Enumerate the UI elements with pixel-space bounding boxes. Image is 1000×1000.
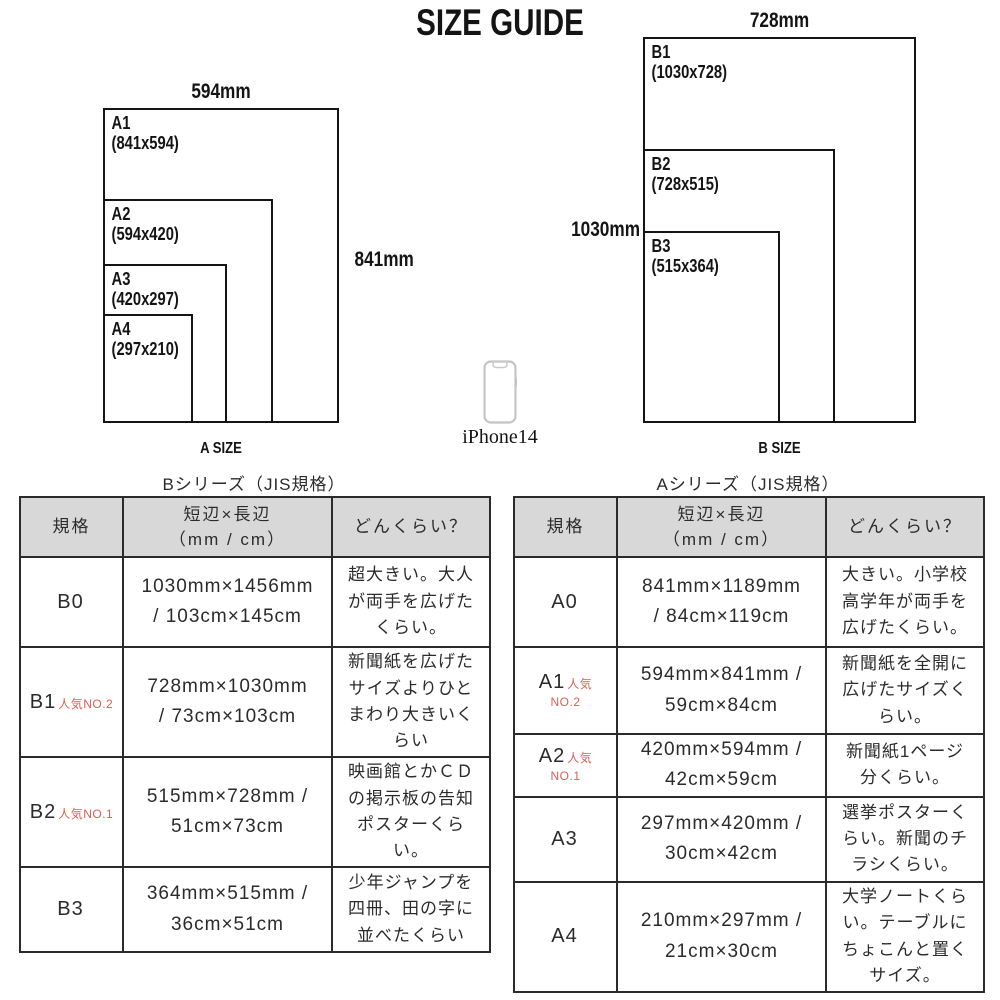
b1-label-cell: B1人気NO.2 [20, 647, 123, 757]
a0-desc-cell: 大きい。小学校 高学年が両手を 広げたくらい。 [826, 557, 984, 647]
a2-desc-cell: 新聞紙1ページ 分くらい。 [826, 734, 984, 797]
b2-label-cell: B2人気NO.1 [20, 757, 123, 867]
popularity-badge: 人気 [567, 677, 592, 691]
b3-desc-cell: 少年ジャンプを 四冊、田の字に 並べたくらい [332, 867, 490, 952]
b1-desc-cell: 新聞紙を広げた サイズよりひと まわり大きいく らい [332, 647, 490, 757]
b-header-howbig: どんくらい？ [332, 497, 490, 557]
a-table-header-row: 規格 短辺×長辺 （mm / cm） どんくらい？ [514, 497, 984, 557]
b1-rect-label: B1 (1030x728) [645, 39, 866, 82]
b-width-label: 728mm [668, 9, 892, 33]
table-row-a0: A0 841mm×1189mm / 84cm×119cm 大きい。小学校 高学年… [514, 557, 984, 647]
b3-size-cell: 364mm×515mm / 36cm×51cm [123, 867, 332, 952]
a4-desc-cell: 大学ノートくら い。テーブルに ちょこんと置く サイズ。 [826, 882, 984, 992]
b-size-caption: B SIZE [668, 440, 892, 458]
size-guide-infographic: SIZE GUIDE 594mm A1 (841x594) A2 (594x42… [0, 0, 1000, 1000]
table-row-b3: B3 364mm×515mm / 36cm×51cm 少年ジャンプを 四冊、田の… [20, 867, 490, 952]
a3-desc-cell: 選挙ポスターく らい。新聞のチ ラシくらい。 [826, 797, 984, 882]
table-row-b0: B0 1030mm×1456mm / 103cm×145cm 超大きい。大人 が… [20, 557, 490, 647]
a1-size-cell: 594mm×841mm / 59cm×84cm [617, 647, 826, 734]
b-table-title: Bシリーズ（JIS規格） [19, 470, 489, 495]
a1-rect-label: A1 (841x594) [105, 110, 295, 153]
a-width-label: 594mm [124, 80, 318, 104]
popularity-badge: 人気NO.1 [58, 807, 113, 821]
b-table-header-row: 規格 短辺×長辺 （mm / cm） どんくらい？ [20, 497, 490, 557]
table-row-a4: A4 210mm×297mm / 21cm×30cm 大学ノートくら い。テーブ… [514, 882, 984, 992]
table-row-a2: A2人気NO.1 420mm×594mm / 42cm×59cm 新聞紙1ページ… [514, 734, 984, 797]
a2-label-cell: A2人気NO.1 [514, 734, 617, 797]
b-height-label: 1030mm [565, 218, 640, 242]
phone-reference: iPhone14 [450, 360, 550, 449]
b0-label-cell: B0 [20, 557, 123, 647]
a-table-title: Aシリーズ（JIS規格） [513, 470, 983, 495]
a-header-howbig: どんくらい？ [826, 497, 984, 557]
a-series-table: 規格 短辺×長辺 （mm / cm） どんくらい？ A0 841mm×1189m… [513, 496, 985, 993]
a4-rect: A4 (297x210) [103, 314, 193, 423]
a4-rect-label: A4 (297x210) [105, 316, 176, 359]
b1-size-cell: 728mm×1030mm / 73cm×103cm [123, 647, 332, 757]
popularity-badge-line2: NO.1 [515, 768, 616, 785]
b0-size-cell: 1030mm×1456mm / 103cm×145cm [123, 557, 332, 647]
iphone-icon [483, 360, 517, 424]
a-header-standard: 規格 [514, 497, 617, 557]
phone-label: iPhone14 [450, 426, 550, 449]
a2-rect-label: A2 (594x420) [105, 201, 241, 244]
b3-rect: B3 (515x364) [643, 231, 780, 423]
a-header-dimensions: 短辺×長辺 （mm / cm） [617, 497, 826, 557]
a0-size-cell: 841mm×1189mm / 84cm×119cm [617, 557, 826, 647]
table-row-a1: A1人気NO.2 594mm×841mm / 59cm×84cm 新聞紙を全開に… [514, 647, 984, 734]
b2-rect-label: B2 (728x515) [645, 151, 799, 194]
b3-rect-label: B3 (515x364) [645, 233, 754, 276]
a4-label-cell: A4 [514, 882, 617, 992]
popularity-badge: 人気 [567, 751, 592, 765]
a0-label-cell: A0 [514, 557, 617, 647]
b-header-standard: 規格 [20, 497, 123, 557]
a3-label-cell: A3 [514, 797, 617, 882]
table-row-a3: A3 297mm×420mm / 30cm×42cm 選挙ポスターく らい。新聞… [514, 797, 984, 882]
b0-desc-cell: 超大きい。大人 が両手を広げた くらい。 [332, 557, 490, 647]
table-row-b1: B1人気NO.2 728mm×1030mm / 73cm×103cm 新聞紙を広… [20, 647, 490, 757]
b-series-table: 規格 短辺×長辺 （mm / cm） どんくらい？ B0 1030mm×1456… [19, 496, 491, 953]
a1-desc-cell: 新聞紙を全開に 広げたサイズく らい。 [826, 647, 984, 734]
a3-rect-label: A3 (420x297) [105, 266, 203, 309]
a4-size-cell: 210mm×297mm / 21cm×30cm [617, 882, 826, 992]
b2-desc-cell: 映画館とかＣＤ の掲示板の告知 ポスターくら い。 [332, 757, 490, 867]
a-size-caption: A SIZE [124, 440, 318, 458]
b3-label-cell: B3 [20, 867, 123, 952]
b2-size-cell: 515mm×728mm / 51cm×73cm [123, 757, 332, 867]
popularity-badge-line2: NO.2 [515, 694, 616, 711]
a3-size-cell: 297mm×420mm / 30cm×42cm [617, 797, 826, 882]
a1-label-cell: A1人気NO.2 [514, 647, 617, 734]
a-height-label: 841mm [355, 248, 414, 272]
table-row-b2: B2人気NO.1 515mm×728mm / 51cm×73cm 映画館とかＣＤ… [20, 757, 490, 867]
b-header-dimensions: 短辺×長辺 （mm / cm） [123, 497, 332, 557]
popularity-badge: 人気NO.2 [58, 697, 113, 711]
a2-size-cell: 420mm×594mm / 42cm×59cm [617, 734, 826, 797]
